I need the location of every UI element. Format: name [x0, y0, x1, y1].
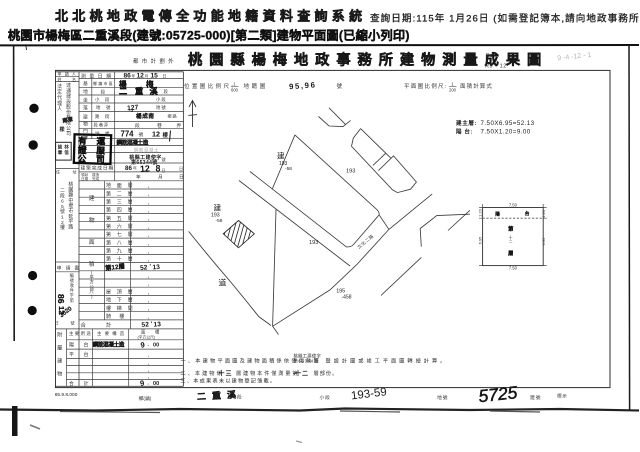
svg-text:號: 號 — [162, 156, 167, 163]
svg-text:公司: 公司 — [78, 154, 115, 165]
svg-text:,: , — [148, 224, 150, 230]
svg-text:建: 建 — [277, 151, 285, 161]
svg-text:中: 中 — [68, 197, 73, 204]
svg-text:地號: 地號 — [437, 394, 448, 401]
svg-text:號: 號 — [106, 104, 111, 111]
svg-text:9: 9 — [140, 340, 145, 350]
svg-text:第四層: 第四層 — [106, 207, 138, 214]
svg-text:鋼筋混凝土造: 鋼筋混凝土造 — [116, 138, 149, 146]
svg-text:年: 年 — [133, 166, 137, 171]
svg-text:十二: 十二 — [295, 369, 309, 377]
svg-text:園: 園 — [68, 187, 73, 193]
svg-text:地面層: 地面層 — [106, 182, 138, 189]
svg-text:主要用途: 主要用途 — [69, 330, 92, 337]
svg-text:第二層: 第二層 — [106, 190, 138, 197]
svg-text:774: 774 — [121, 130, 135, 139]
svg-text:公: 公 — [66, 126, 71, 132]
svg-text:號: 號 — [71, 320, 75, 326]
svg-text:月: 月 — [145, 73, 149, 78]
svg-text:騎 樓: 騎 樓 — [106, 313, 128, 320]
svg-text:1: 1 — [61, 215, 64, 221]
svg-text:路: 路 — [68, 223, 73, 230]
svg-text:月: 月 — [158, 174, 163, 180]
svg-text:二: 二 — [60, 188, 65, 194]
svg-text:延: 延 — [68, 213, 73, 220]
svg-text:樑: 樑 — [60, 126, 66, 133]
svg-text:7.50: 7.50 — [509, 266, 518, 271]
svg-text:鄉路: 鄉路 — [168, 113, 178, 120]
svg-text:樓: 樓 — [105, 130, 110, 137]
svg-text:建號: 建號 — [530, 394, 541, 401]
svg-text:9: 9 — [139, 378, 144, 388]
svg-text:第: 第 — [508, 225, 514, 233]
svg-text:鄉鎮市區: 鄉鎮市區 — [93, 80, 114, 86]
svg-text:段: 段 — [164, 88, 169, 95]
svg-text:地: 地 — [83, 88, 88, 95]
svg-text:二: 二 — [119, 87, 127, 96]
svg-text:12: 12 — [152, 129, 160, 138]
svg-text:R9 - 12: R9 - 12 — [485, 64, 507, 70]
svg-text:溪: 溪 — [150, 86, 159, 96]
svg-text:年: 年 — [136, 173, 141, 180]
svg-text:7.50X6.95=52.13: 7.50X6.95=52.13 — [481, 120, 535, 127]
svg-text:基: 基 — [83, 80, 88, 87]
svg-text:法: 法 — [57, 83, 62, 90]
svg-text:計: 計 — [84, 380, 89, 387]
svg-text:段: 段 — [101, 88, 106, 95]
svg-text:5: 5 — [61, 204, 64, 210]
svg-text:建築完成日期: 建築完成日期 — [81, 165, 115, 172]
svg-text:設: 設 — [66, 98, 71, 105]
svg-text:三、本成果表未以建物登記簿載。: 三、本成果表未以建物登記簿載。 — [181, 377, 277, 385]
svg-text:平面圖比例尺:: 平面圖比例尺: — [404, 82, 448, 90]
svg-text:物: 物 — [83, 121, 88, 128]
svg-text:200: 200 — [449, 88, 457, 93]
svg-text:.: . — [148, 342, 150, 348]
svg-text:合: 合 — [69, 380, 74, 387]
svg-text:附: 附 — [57, 331, 62, 339]
svg-text:52: 52 — [141, 321, 149, 329]
svg-text:5725: 5725 — [477, 382, 518, 406]
svg-text:段: 段 — [135, 122, 140, 129]
svg-text:12: 12 — [137, 73, 145, 80]
svg-text:落: 落 — [83, 105, 88, 112]
svg-text:第: 第 — [70, 297, 75, 304]
svg-text:Bd: Bd — [486, 53, 493, 59]
svg-text:面積計算式: 面積計算式 — [460, 82, 493, 90]
svg-text:台: 台 — [525, 210, 530, 217]
svg-text:日: 日 — [162, 168, 166, 174]
svg-text:,: , — [148, 208, 150, 214]
svg-text:第十層: 第十層 — [106, 256, 138, 263]
svg-text:弄: 弄 — [177, 123, 182, 129]
svg-text:積: 積 — [89, 260, 95, 268]
svg-text:193: 193 — [346, 168, 355, 174]
svg-text:95,96: 95,96 — [289, 80, 317, 91]
svg-text:楊成南: 楊成南 — [136, 112, 155, 120]
svg-text:暨設計圖或竣工平面圖轉繪計算。: 暨設計圖或竣工平面圖轉繪計算。 — [326, 356, 449, 364]
svg-text:完成: 完成 — [92, 176, 100, 181]
svg-text:鋼筋混凝土造: 鋼筋混凝土造 — [93, 341, 125, 349]
svg-text:十三: 十三 — [219, 369, 233, 377]
svg-text:-3: -3 — [129, 108, 134, 114]
svg-text:樓梯間: 樓梯間 — [106, 305, 138, 312]
svg-text:重: 重 — [135, 86, 143, 96]
svg-text:名: 名 — [72, 76, 76, 82]
svg-text:13: 13 — [153, 321, 161, 329]
svg-text:日: 日 — [55, 320, 59, 325]
svg-text:193-59: 193-59 — [350, 386, 387, 402]
svg-text:日: 日 — [179, 174, 184, 180]
svg-text:層建物本件僅測量第: 層建物本件僅測量第 — [236, 369, 299, 377]
svg-text:台: 台 — [84, 342, 89, 349]
svg-text:號: 號 — [95, 130, 100, 137]
svg-text:測量日期: 測量日期 — [81, 72, 115, 79]
svg-text:13: 13 — [152, 264, 160, 272]
svg-text:第七層: 第七層 — [106, 231, 138, 238]
svg-text:牌: 牌 — [83, 135, 88, 142]
svg-text:第六層: 第六層 — [106, 223, 138, 230]
svg-text:-58: -58 — [285, 166, 292, 172]
svg-text:86: 86 — [125, 165, 132, 172]
svg-text:,: , — [148, 273, 150, 279]
svg-text:,: , — [148, 352, 150, 358]
svg-text:-59: -59 — [216, 218, 223, 224]
svg-text:面: 面 — [89, 239, 95, 246]
svg-text:日期: 日期 — [81, 176, 89, 181]
svg-text:巷: 巷 — [157, 123, 162, 129]
svg-text:第65344號: 第65344號 — [294, 358, 319, 365]
svg-text:1.20: 1.20 — [541, 209, 546, 218]
svg-text:樓: 樓 — [60, 224, 65, 231]
svg-text:股: 股 — [66, 104, 71, 110]
svg-text:6.95: 6.95 — [541, 237, 546, 246]
svg-text:物: 物 — [89, 216, 95, 224]
svg-text:台: 台 — [84, 351, 89, 358]
svg-text:信: 信 — [64, 149, 69, 156]
svg-text:積: 積 — [155, 329, 160, 336]
svg-text:陽: 陽 — [69, 342, 74, 349]
svg-text:鄉(鎮): 鄉(鎮) — [139, 395, 152, 402]
svg-text:,: , — [148, 257, 150, 263]
svg-text:,: , — [148, 241, 150, 247]
svg-text:,: , — [148, 282, 150, 288]
svg-text:市: 市 — [68, 208, 73, 215]
svg-text:號: 號 — [139, 131, 144, 138]
svg-text:合: 合 — [81, 321, 87, 329]
svg-text:建主層:: 建主層: — [455, 119, 477, 127]
svg-text:桃園市楊梅區二重溪段(建號:05725-000)[第二類]建: 桃園市楊梅區二重溪段(建號:05725-000)[第二類]建物平面圖(已縮小列印… — [8, 28, 410, 43]
svg-text:二、本建物係: 二、本建物係 — [181, 369, 224, 377]
svg-text:門: 門 — [83, 129, 88, 135]
svg-text:層部份。: 層部份。 — [314, 369, 339, 377]
svg-text:人: 人 — [57, 106, 62, 112]
svg-text:,: , — [148, 216, 150, 222]
svg-text:理: 理 — [57, 101, 62, 107]
svg-text:地籍圖: 地籍圖 — [244, 82, 268, 90]
svg-text:段: 段 — [237, 394, 242, 401]
svg-text:地: 地 — [96, 104, 101, 110]
svg-text:,: , — [148, 306, 150, 312]
svg-text:00: 00 — [153, 381, 159, 387]
svg-text:街: 街 — [105, 113, 110, 120]
svg-text:小段: 小段 — [156, 96, 167, 103]
svg-text:樓: 樓 — [163, 131, 169, 139]
svg-text:第八層: 第八層 — [106, 239, 138, 246]
svg-text:陽 台:: 陽 台: — [456, 128, 473, 136]
svg-text:都市計劃外: 都市計劃外 — [133, 57, 177, 65]
svg-text:住: 住 — [56, 168, 61, 174]
svg-text:達: 達 — [66, 82, 71, 89]
svg-text:.: . — [148, 380, 150, 386]
svg-text:': ' — [150, 265, 152, 271]
svg-text:日: 日 — [163, 74, 167, 78]
svg-text:(平方公尺): (平方公尺) — [138, 335, 156, 340]
svg-text:86: 86 — [56, 294, 66, 304]
svg-text:地下層: 地下層 — [106, 297, 138, 304]
svg-text:鋼筋混凝土: 鋼筋混凝土 — [134, 147, 159, 154]
svg-text:道: 道 — [218, 278, 226, 288]
svg-text:位置圖比例尺:: 位置圖比例尺: — [184, 82, 235, 90]
svg-text:6.95: 6.95 — [478, 236, 483, 245]
svg-text:物: 物 — [57, 370, 62, 378]
svg-text:52: 52 — [140, 264, 148, 272]
svg-text:建: 建 — [83, 114, 88, 121]
svg-text:600: 600 — [231, 88, 239, 93]
svg-text:號: 號 — [60, 208, 65, 215]
svg-text:段: 段 — [60, 192, 65, 199]
svg-text:1: 1 — [451, 82, 454, 87]
svg-text:第九層: 第九層 — [106, 248, 138, 255]
svg-text:小段: 小段 — [320, 394, 331, 401]
svg-text:日: 日 — [179, 166, 183, 172]
svg-text:平: 平 — [68, 219, 73, 225]
svg-text:屋頂層: 屋頂層 — [106, 289, 138, 295]
svg-text:標示: 標示 — [557, 393, 567, 400]
svg-text:壢: 壢 — [68, 202, 73, 209]
svg-text:坐: 坐 — [83, 96, 88, 103]
svg-text:二: 二 — [509, 240, 513, 244]
svg-text:二重溪: 二重溪 — [197, 388, 243, 401]
svg-text:第三層: 第三層 — [106, 198, 138, 205]
svg-text:章: 章 — [58, 149, 63, 156]
svg-text:段巷弄: 段巷弄 — [94, 122, 110, 129]
svg-text:桃: 桃 — [68, 181, 73, 188]
svg-text:1: 1 — [233, 82, 236, 87]
svg-text:址: 址 — [73, 168, 78, 174]
svg-text:司: 司 — [66, 131, 71, 137]
svg-text:,: , — [148, 314, 150, 320]
svg-text:主要構造: 主要構造 — [97, 330, 127, 337]
svg-text:屬: 屬 — [57, 345, 62, 352]
svg-text:193: 193 — [309, 240, 318, 246]
svg-text:定: 定 — [57, 89, 62, 96]
svg-text:路: 路 — [95, 113, 100, 120]
svg-text:建: 建 — [89, 194, 95, 202]
svg-text:,: , — [148, 183, 150, 189]
svg-text:12: 12 — [140, 163, 151, 174]
svg-text:85.9.8.000: 85.9.8.000 — [55, 392, 78, 398]
svg-text:7.50X1.20=9.00: 7.50X1.20=9.00 — [481, 129, 531, 136]
svg-text:-458: -458 — [342, 295, 352, 301]
svg-text:姓: 姓 — [58, 76, 62, 82]
svg-text:,: , — [148, 290, 150, 296]
svg-text:第五層: 第五層 — [106, 215, 138, 222]
svg-text:計: 計 — [106, 321, 112, 329]
svg-text:地號: 地號 — [156, 104, 167, 111]
svg-text:年: 年 — [132, 73, 136, 78]
svg-text:7.50: 7.50 — [509, 202, 518, 207]
svg-text:2: 2 — [61, 220, 64, 226]
svg-text:北北桃地政電傳全功能地籍資料查詢系統: 北北桃地政電傳全功能地籍資料查詢系統 — [55, 9, 366, 24]
svg-text:建: 建 — [57, 357, 62, 365]
svg-text:8: 8 — [156, 164, 161, 174]
svg-text:193: 193 — [211, 213, 220, 219]
svg-text:通: 通 — [66, 87, 71, 94]
svg-text:陽: 陽 — [495, 210, 500, 217]
svg-text:層: 層 — [508, 249, 513, 257]
svg-text:代: 代 — [57, 94, 62, 101]
svg-text:,: , — [148, 192, 150, 198]
svg-text:平: 平 — [69, 352, 74, 358]
svg-text:申請人: 申請人 — [58, 71, 80, 77]
svg-text:,: , — [148, 233, 150, 239]
svg-text:,: , — [148, 298, 150, 304]
svg-text:申請書: 申請書 — [57, 265, 83, 272]
svg-text:查詢日期:115年 1月26日 (如需登記簿本,請向地政事務: 查詢日期:115年 1月26日 (如需登記簿本,請向地政事務所申請.) — [370, 13, 640, 25]
svg-text:段: 段 — [105, 96, 110, 103]
svg-text:1.20: 1.20 — [478, 208, 483, 217]
svg-text:9 -4 -12 - 1: 9 -4 -12 - 1 — [557, 52, 592, 63]
svg-text:建: 建 — [214, 203, 222, 213]
svg-text:): ) — [91, 294, 93, 299]
svg-text:縣: 縣 — [68, 192, 73, 199]
svg-text:00: 00 — [153, 343, 159, 349]
svg-text:號: 號 — [337, 82, 343, 90]
svg-text:份: 份 — [66, 109, 71, 116]
svg-text:小: 小 — [95, 96, 100, 103]
svg-text:建: 建 — [66, 93, 71, 100]
svg-text:6: 6 — [61, 199, 64, 205]
